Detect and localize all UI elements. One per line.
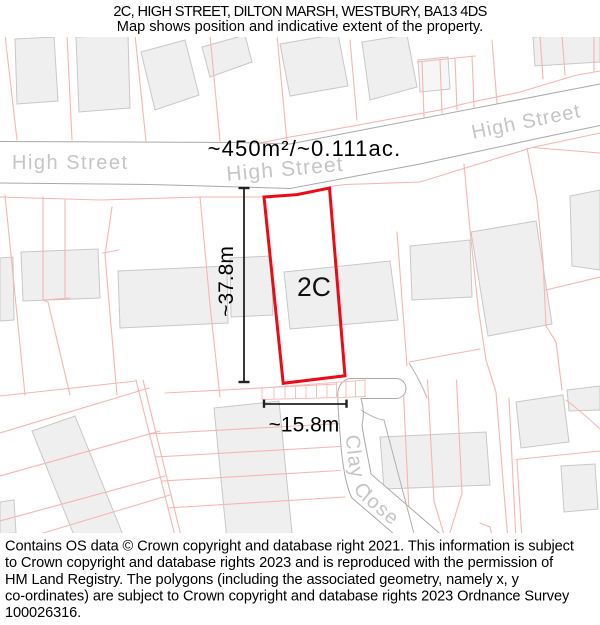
svg-text:Map shows position and indicat: Map shows position and indicative extent…: [117, 19, 483, 35]
svg-text:~37.8m: ~37.8m: [215, 246, 238, 317]
svg-text:Contains OS data © Crown copyr: Contains OS data © Crown copyright and d…: [5, 539, 574, 555]
svg-text:2C, HIGH STREET, DILTON MARSH,: 2C, HIGH STREET, DILTON MARSH, WESTBURY,…: [113, 4, 487, 20]
svg-text:co-ordinates) are subject to C: co-ordinates) are subject to Crown copyr…: [5, 588, 570, 604]
svg-text:~15.8m: ~15.8m: [269, 414, 340, 437]
svg-text:to Crown copyright and databas: to Crown copyright and database rights 2…: [5, 555, 554, 571]
svg-text:~450m²/~0.111ac.: ~450m²/~0.111ac.: [208, 136, 402, 161]
svg-text:High Street: High Street: [12, 152, 129, 174]
svg-text:HM Land Registry. The polygons: HM Land Registry. The polygons (includin…: [5, 572, 520, 588]
svg-text:2C: 2C: [297, 272, 331, 302]
svg-text:100026316.: 100026316.: [5, 605, 81, 621]
